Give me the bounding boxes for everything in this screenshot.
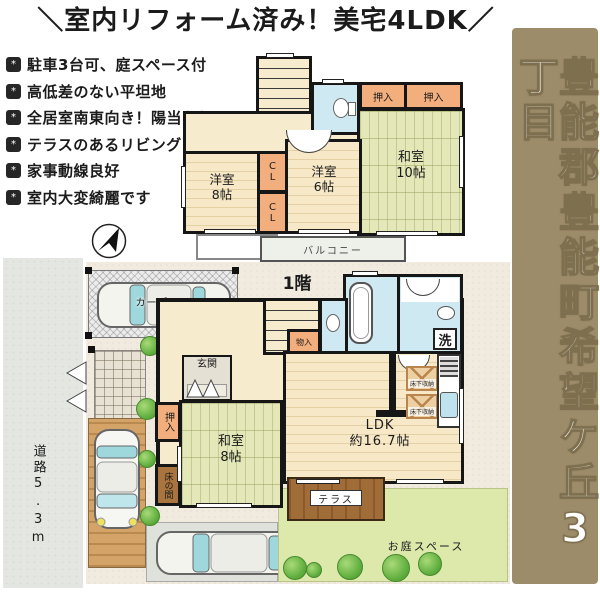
stamp-bullet-icon: *: [6, 57, 21, 72]
kitchen-sink-icon: [440, 392, 458, 418]
window: [396, 479, 444, 484]
stamp-bullet-icon: *: [6, 84, 21, 99]
closet-label: C L: [269, 202, 276, 224]
location-banner-text: 豊能郡豊能町希望ケ丘3丁目: [515, 56, 595, 584]
closet-cl-2f-a: C L: [257, 151, 288, 193]
tokonoma-label: 床の間: [162, 472, 175, 499]
laundry-label-box: 洗: [433, 328, 457, 350]
window: [352, 271, 378, 276]
feature-label: 室内大変綺麗です: [27, 187, 151, 208]
feature-label: テラスのあるリビング: [27, 134, 182, 155]
feature-item: *テラスのあるリビング: [6, 133, 182, 155]
balcony-2f: バルコニー: [260, 236, 406, 262]
underfloor-label: 床下収納: [408, 379, 436, 388]
interior-wall: [389, 354, 396, 412]
room-label: 和室 10帖: [376, 150, 446, 181]
closet-label: 押入: [373, 89, 393, 104]
tree-icon: [140, 506, 160, 526]
car-icon: [92, 428, 142, 530]
carport-post: [85, 332, 92, 339]
feature-item: *高低差のない平坦地: [6, 80, 167, 102]
closet-label: C L: [269, 161, 276, 183]
stamp-bullet-icon: *: [6, 110, 21, 125]
window: [177, 446, 182, 482]
page-title: ＼室内リフォーム済み！美宅4LDK／: [22, 6, 510, 37]
stamp-bullet-icon: *: [6, 137, 21, 152]
window: [296, 479, 340, 484]
sink-icon: [437, 306, 455, 320]
bush-icon: [337, 554, 363, 580]
feature-label: 高低差のない平坦地: [27, 81, 167, 102]
genkan-label: 玄関: [184, 359, 230, 371]
toilet-tank-icon: [348, 102, 356, 116]
room-label: LDK 約16.7帖: [330, 418, 430, 449]
feature-item: *家事動線良好: [6, 159, 120, 181]
road-label: 道路5.3m: [30, 444, 46, 548]
toilet-icon: [326, 314, 340, 332]
window: [181, 166, 186, 208]
underfloor-storage: 床下収納: [406, 366, 438, 391]
carport-post: [85, 267, 92, 274]
closet-label: 押入: [424, 89, 444, 104]
laundry-label: 洗: [438, 330, 451, 349]
garden-label: お庭スペース: [368, 540, 484, 553]
floorplan-flyer: ＼室内リフォーム済み！美宅4LDK／ *駐車3台可、庭スペース付 *高低差のない…: [0, 0, 600, 600]
stove-icon: [440, 357, 458, 377]
closet-label: 押入: [161, 412, 176, 432]
bush-icon: [306, 562, 322, 578]
closet-oshiire-1f: 押入: [155, 402, 181, 442]
window: [322, 79, 344, 84]
balcony-label: バルコニー: [303, 242, 363, 257]
bush-icon: [382, 554, 410, 582]
underfloor-label: 床下収納: [408, 407, 436, 416]
room-label: 和室 8帖: [198, 434, 264, 465]
feature-item: *駐車3台可、庭スペース付: [6, 53, 207, 75]
closet-oshiire-2f-b: 押入: [404, 82, 463, 110]
window: [298, 229, 350, 234]
stamp-bullet-icon: *: [6, 190, 21, 205]
terrace-label-box: テラス: [310, 490, 362, 506]
window: [204, 229, 256, 234]
window: [459, 136, 464, 188]
room-label: 洋室 8帖: [190, 172, 254, 202]
entry-door-icon: [186, 378, 220, 398]
feature-label: 家事動線良好: [27, 160, 120, 181]
north-compass-icon: [90, 222, 128, 260]
feature-label: 駐車3台可、庭スペース付: [27, 54, 207, 75]
window: [196, 503, 252, 508]
underfloor-storage: 床下収納: [406, 394, 438, 419]
tree-icon: [138, 450, 156, 468]
bush-icon: [283, 556, 307, 580]
window: [459, 388, 464, 444]
carport-post: [232, 267, 239, 274]
stamp-bullet-icon: *: [6, 163, 21, 178]
closet-oshiire-2f-a: 押入: [359, 82, 407, 110]
terrace-label: テラス: [318, 491, 354, 506]
room-label: 洋室 6帖: [292, 164, 356, 194]
gate-doors-icon: [64, 360, 88, 418]
feature-item: *室内大変綺麗です: [6, 186, 151, 208]
floor-label-1f: 1階: [272, 274, 322, 294]
window: [266, 53, 294, 58]
closet-label: 物入: [296, 337, 312, 348]
bathtub-inner: [353, 287, 369, 339]
location-banner: 豊能郡豊能町希望ケ丘3丁目: [512, 28, 598, 584]
toilet-icon: [333, 98, 349, 118]
bush-icon: [418, 552, 442, 576]
closet-cl-2f-b: C L: [257, 191, 288, 234]
staircase-2f: [256, 56, 312, 114]
gate-post: [88, 346, 95, 353]
window: [376, 231, 438, 236]
